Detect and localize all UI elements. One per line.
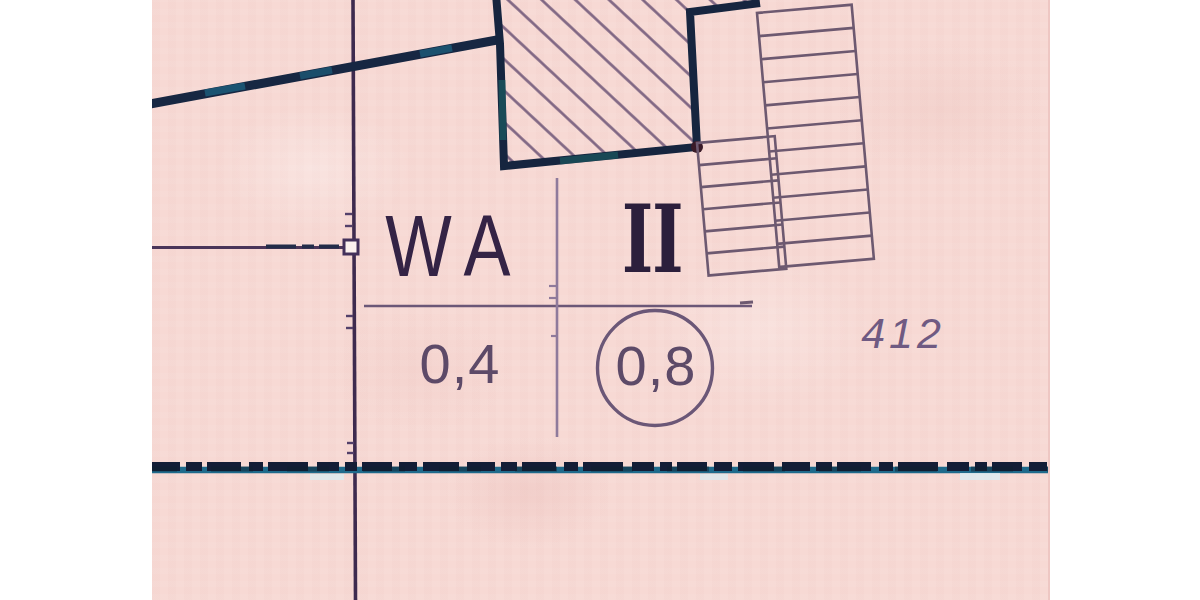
plan-drawing: WA II 0,4 0,8 412 — [0, 0, 1200, 600]
storeys-roman-numeral: II — [622, 184, 682, 294]
horizontal-parcel-line — [152, 247, 344, 248]
stray-dash-mark — [740, 302, 753, 303]
plan-boundary-band — [152, 467, 1048, 481]
band-light-smudge — [960, 473, 1000, 480]
vertical-parcel-boundary-line — [345, 0, 356, 600]
zoning-plan-screenshot: WA II 0,4 0,8 412 — [0, 0, 1200, 600]
band-light-smudge — [700, 474, 728, 480]
value-left: 0,4 — [420, 332, 501, 395]
band-light-smudge — [310, 474, 344, 480]
area-use-label: WA — [385, 196, 525, 294]
thick-diagonal-boundary-line — [150, 40, 497, 104]
value-circled: 0,8 — [616, 334, 697, 397]
parcel-number: 412 — [861, 309, 945, 357]
boundary-node-square — [344, 240, 358, 254]
